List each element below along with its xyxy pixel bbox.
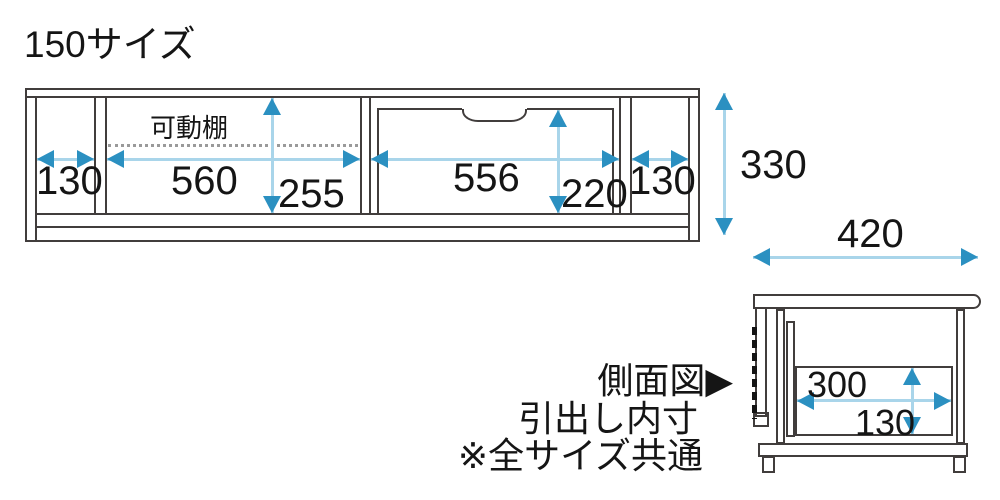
shelf-height-arrowhead-top [263, 98, 281, 115]
dim-label-left-width: 130 [36, 161, 103, 201]
shelf-width-arrowhead-left [107, 150, 124, 168]
side-front-frame-panel [776, 309, 785, 444]
drawer-width-arrowhead-left [371, 150, 388, 168]
side-top-panel [753, 294, 981, 309]
depth-arrowhead-right [961, 248, 978, 266]
side-drawer-box-front-wall [786, 321, 795, 437]
dim-label-drawer-height: 220 [561, 174, 628, 214]
movable-shelf-dotted-line [108, 144, 358, 147]
dim-label-drawer-inner-height: 130 [855, 405, 915, 441]
total-height-dim-line [723, 93, 726, 235]
cabinet-outline [25, 88, 700, 242]
shelf-width-arrowhead-right [343, 150, 360, 168]
drawer-depth-arrowhead-right [934, 392, 951, 410]
drawer-height-arrowhead-top [549, 110, 567, 127]
dim-label-depth: 420 [837, 214, 904, 254]
dim-label-drawer-width: 556 [453, 158, 520, 198]
dim-label-right-width: 130 [629, 161, 696, 201]
dim-label-drawer-depth: 300 [807, 367, 867, 403]
depth-arrowhead-left [753, 248, 770, 266]
drawer-top-edge-left [377, 108, 462, 110]
side-back-leg [953, 456, 966, 473]
side-front-leg [762, 456, 775, 473]
dim-label-shelf-height: 255 [278, 174, 345, 214]
furniture-dimension-diagram: 150サイズ [0, 0, 1000, 500]
side-front-edge-hatch [752, 327, 757, 419]
side-view-pointer-label: 側面図▶ [597, 363, 733, 399]
dim-label-total-height: 330 [740, 145, 807, 185]
top-panel-inner-line [27, 96, 698, 98]
side-back-wall [956, 309, 965, 444]
divider-b-line-1 [360, 96, 362, 215]
drawer-inner-size-label: 引出し内寸 [518, 401, 698, 437]
movable-shelf-label: 可動棚 [150, 115, 228, 141]
all-sizes-common-note: ※全サイズ共通 [458, 438, 703, 474]
total-height-arrowhead-top [715, 93, 733, 110]
depth-dim-line [753, 256, 978, 259]
drawer-top-edge-right [527, 108, 614, 110]
dim-label-shelf-width: 560 [171, 161, 238, 201]
base-rail-line [37, 226, 688, 228]
total-height-arrowhead-bottom [715, 218, 733, 235]
side-base-rail [758, 443, 968, 457]
drawer-width-arrowhead-right [602, 150, 619, 168]
size-title: 150サイズ [24, 26, 196, 63]
drawer-inner-height-arrowhead-top [903, 368, 921, 385]
drawer-finger-notch [462, 109, 527, 122]
